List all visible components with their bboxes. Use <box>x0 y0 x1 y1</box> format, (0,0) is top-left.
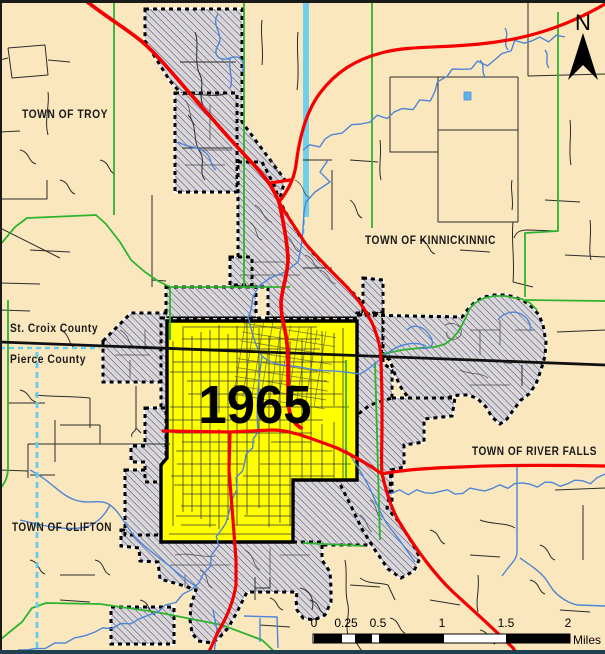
svg-text:1: 1 <box>439 616 446 630</box>
svg-text:N: N <box>575 10 591 35</box>
svg-text:Miles: Miles <box>573 633 601 647</box>
svg-text:TOWN OF RIVER FALLS: TOWN OF RIVER FALLS <box>472 444 597 458</box>
svg-text:TOWN OF KINNICKINNIC: TOWN OF KINNICKINNIC <box>365 233 496 247</box>
svg-text:TOWN OF CLIFTON: TOWN OF CLIFTON <box>12 520 112 534</box>
svg-text:2: 2 <box>565 616 572 630</box>
svg-text:St. Croix County: St. Croix County <box>10 321 98 335</box>
svg-text:0.5: 0.5 <box>370 616 387 630</box>
svg-text:Pierce County: Pierce County <box>10 352 86 366</box>
svg-text:TOWN OF TROY: TOWN OF TROY <box>22 107 108 121</box>
svg-text:0: 0 <box>311 616 318 630</box>
svg-text:0.25: 0.25 <box>334 616 358 630</box>
svg-text:1.5: 1.5 <box>498 616 515 630</box>
svg-text:1965: 1965 <box>199 375 312 435</box>
